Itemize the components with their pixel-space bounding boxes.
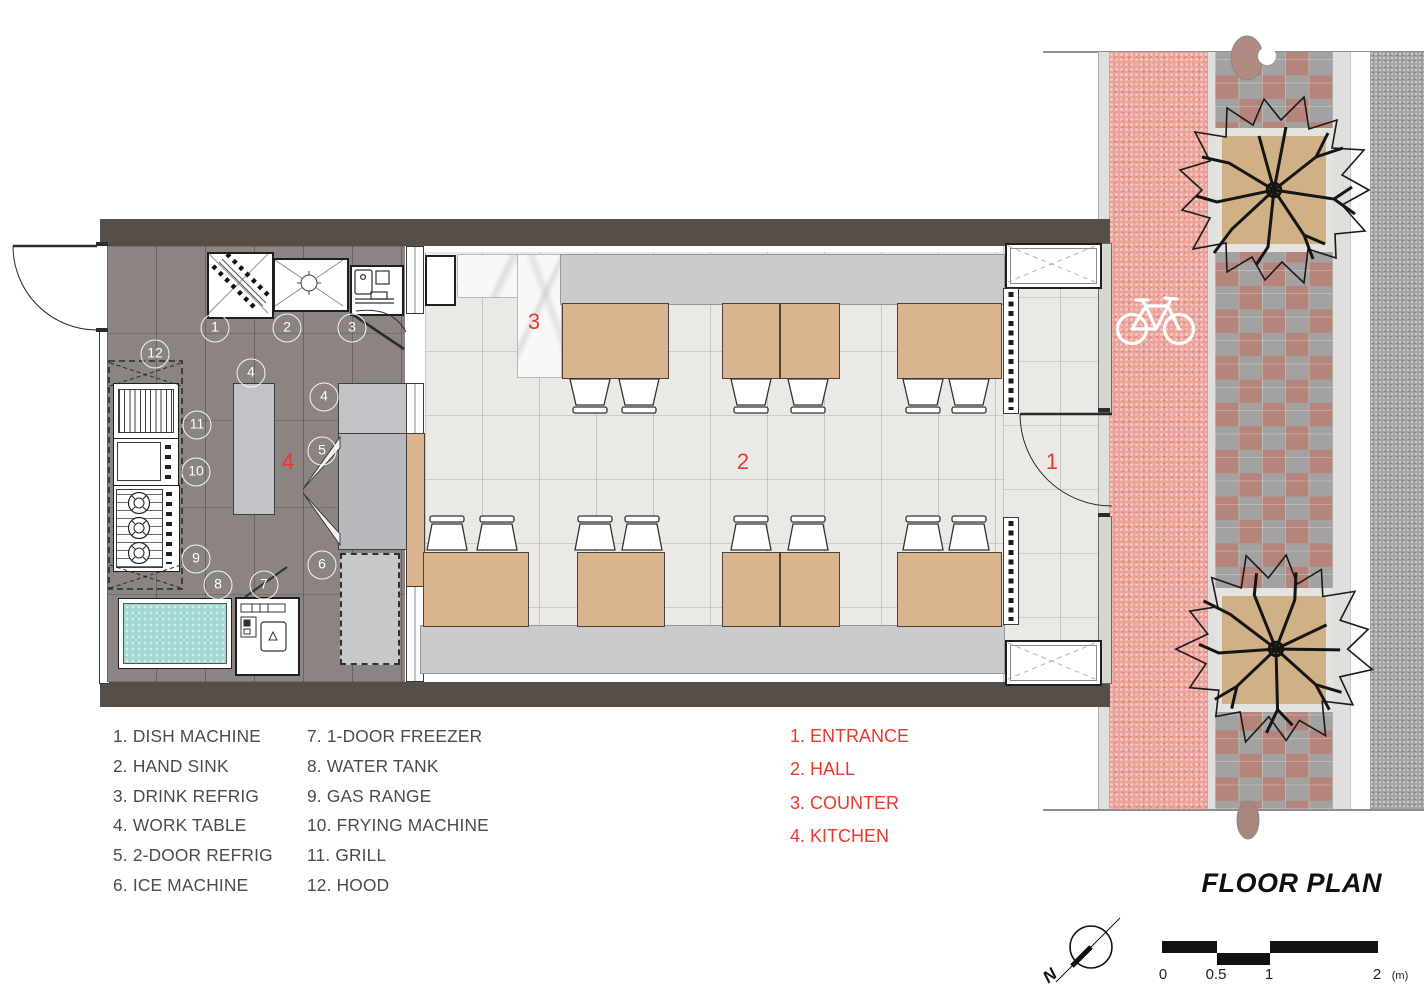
work-table (338, 383, 407, 435)
equipment-legend-col2: 7. 1-DOOR FREEZER 8. WATER TANK 9. GAS R… (307, 726, 489, 905)
equipment-marker: 9 (182, 545, 211, 574)
zone-number-kitchen: 4 (282, 449, 294, 475)
partition-window-top (406, 246, 424, 314)
entry-display-divider-top (1003, 288, 1019, 414)
scale-label: 0 (1159, 966, 1167, 983)
one-door-freezer (235, 597, 300, 676)
legend-item: 1. DISH MACHINE (113, 726, 273, 756)
equipment-marker: 8 (204, 571, 233, 600)
dining-table (780, 552, 840, 627)
scale-bar-segment (1270, 941, 1378, 953)
dining-table (722, 552, 780, 627)
street-bike-lane (1109, 52, 1207, 809)
zone-legend-item: 4. KITCHEN (790, 826, 909, 859)
zone-number-counter: 3 (528, 309, 540, 335)
dining-table (423, 552, 529, 627)
ice-machine (340, 553, 400, 665)
equipment-marker: 4 (237, 359, 266, 388)
tree-planter-soil (1222, 596, 1326, 704)
entry-planter-top (1005, 243, 1102, 289)
two-door-refrigerator (338, 433, 407, 550)
bench-seat-top (560, 254, 1005, 305)
street-bottom-boundary (1043, 809, 1424, 811)
legend-item: 3. DRINK REFRIG (113, 786, 273, 816)
equipment-marker: 4 (310, 383, 339, 412)
legend-item: 6. ICE MACHINE (113, 875, 273, 905)
equipment-marker: 7 (250, 571, 279, 600)
bottom-wall (100, 682, 1110, 707)
dining-table (577, 552, 665, 627)
dining-table (562, 303, 669, 379)
dining-table (897, 303, 1002, 379)
drink-refrigerator (350, 265, 404, 316)
door-jamb (1098, 408, 1110, 412)
scale-bar-segment (1217, 953, 1270, 965)
water-tank-water (123, 603, 227, 664)
frying-machine-top (117, 442, 161, 481)
equipment-marker: 1 (201, 314, 230, 343)
equipment-marker: 6 (308, 551, 337, 580)
entry-display-divider-bottom (1003, 517, 1019, 625)
scale-label: 1 (1265, 966, 1273, 983)
floor-plan-canvas: 1 2 3 12 4 4 5 11 10 9 6 8 7 1 2 3 4 1. … (0, 0, 1424, 1000)
legend-item: 9. GAS RANGE (307, 786, 489, 816)
door-jamb (96, 328, 108, 332)
top-wall (100, 219, 1110, 246)
zone-legend-item: 1. ENTRANCE (790, 726, 909, 759)
north-arrow-icon (1056, 918, 1120, 982)
scale-unit-label: (m) (1392, 970, 1409, 982)
dining-table (780, 303, 840, 379)
door-jamb (96, 242, 108, 246)
street-road (1370, 52, 1424, 809)
legend-item: 7. 1-DOOR FREEZER (307, 726, 489, 756)
bench-seat-bottom (420, 625, 1005, 674)
street-gutter (1350, 52, 1372, 809)
entry-planter-bottom (1005, 640, 1102, 686)
dining-table (722, 303, 780, 379)
door-jamb (1098, 513, 1110, 517)
equipment-marker: 2 (273, 314, 302, 343)
curb-right (1332, 52, 1352, 809)
dining-table (897, 552, 1002, 627)
zone-number-hall: 2 (737, 449, 749, 475)
equipment-marker: 12 (141, 340, 170, 369)
partition-window-mid (406, 383, 424, 434)
scale-label: 2 (1373, 966, 1381, 983)
legend-item: 12. HOOD (307, 875, 489, 905)
equipment-marker: 10 (182, 458, 211, 487)
dish-machine (207, 252, 274, 319)
zone-legend-item: 2. HALL (790, 759, 909, 792)
tree-planter-soil (1222, 136, 1326, 244)
legend-item: 8. WATER TANK (307, 756, 489, 786)
north-label: N (1039, 964, 1061, 987)
hand-sink (273, 258, 349, 312)
counter-cabinet (425, 255, 456, 306)
legend-item: 11. GRILL (307, 845, 489, 875)
equipment-marker: 5 (308, 437, 337, 466)
zone-legend-item: 3. COUNTER (790, 793, 909, 826)
equipment-legend-col1: 1. DISH MACHINE 2. HAND SINK 3. DRINK RE… (113, 726, 273, 905)
scale-label: 0.5 (1206, 966, 1227, 983)
gas-range-grate (116, 489, 163, 568)
work-table (233, 383, 275, 515)
legend-item: 2. HAND SINK (113, 756, 273, 786)
grill-grate (118, 389, 174, 433)
equipment-marker: 3 (338, 314, 367, 343)
page-title: FLOOR PLAN (1082, 868, 1382, 899)
legend-item: 4. WORK TABLE (113, 815, 273, 845)
legend-item: 10. FRYING MACHINE (307, 815, 489, 845)
zone-number-entrance: 1 (1046, 449, 1058, 475)
equipment-marker: 11 (183, 411, 212, 440)
scale-bar-segment (1162, 941, 1217, 953)
back-door (13, 246, 97, 330)
legend-item: 5. 2-DOOR REFRIG (113, 845, 273, 875)
zone-legend: 1. ENTRANCE 2. HALL 3. COUNTER 4. KITCHE… (790, 726, 909, 860)
